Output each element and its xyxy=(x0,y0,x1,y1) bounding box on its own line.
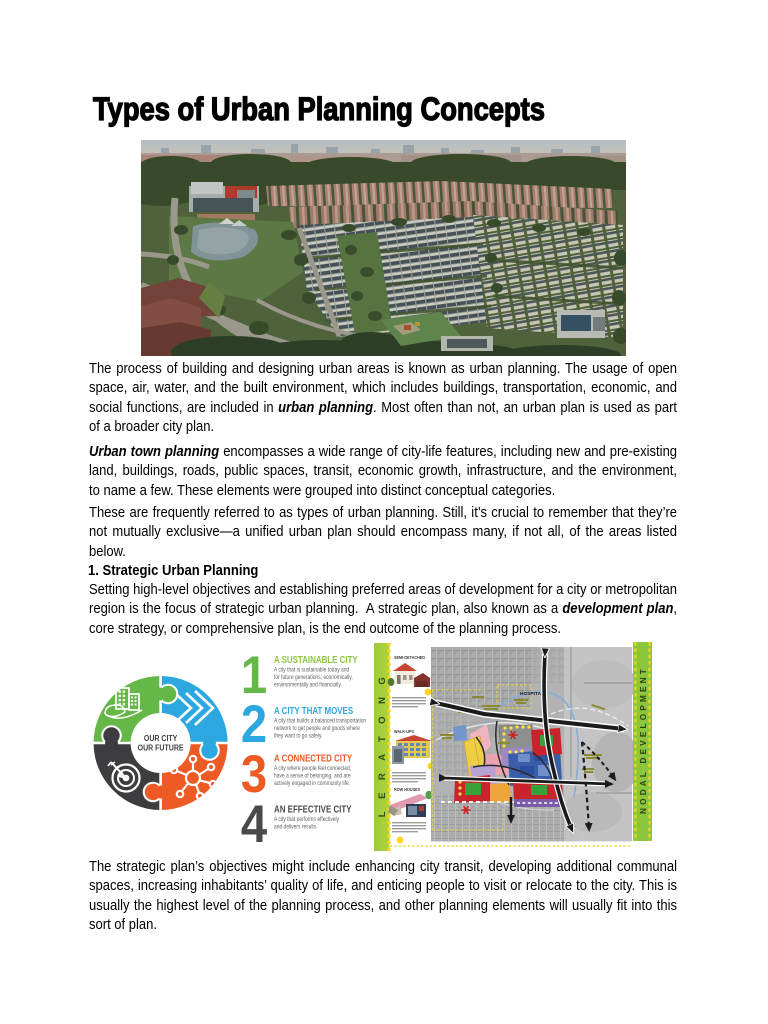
svg-text:OUR CITY: OUR CITY xyxy=(144,734,178,743)
svg-text:A CITY THAT MOVES: A CITY THAT MOVES xyxy=(274,705,353,716)
svg-text:A CONNECTED CITY: A CONNECTED CITY xyxy=(274,753,352,764)
svg-text:they want to go safely.: they want to go safely. xyxy=(274,733,323,740)
svg-text:have a sense of belonging, and: have a sense of belonging, and are xyxy=(274,773,351,780)
svg-text:WALK-UPS: WALK-UPS xyxy=(394,729,414,734)
svg-text:network to get people and good: network to get people and goods where xyxy=(274,726,360,733)
svg-text:AN EFFECTIVE CITY: AN EFFECTIVE CITY xyxy=(274,804,352,815)
svg-text:HOSPITAL: HOSPITAL xyxy=(520,691,544,697)
svg-text:OUR FUTURE: OUR FUTURE xyxy=(138,743,184,752)
svg-text:environmentally and financiall: environmentally and financially. xyxy=(274,682,342,689)
svg-text:LERATONG: LERATONG xyxy=(377,665,388,817)
svg-text:A SUSTAINABLE CITY: A SUSTAINABLE CITY xyxy=(274,654,358,665)
svg-text:A city that builds a balanced: A city that builds a balanced transporta… xyxy=(274,718,366,725)
svg-text:NODAL DEVELOPMENT: NODAL DEVELOPMENT xyxy=(639,666,648,814)
svg-text:A city where people feel conne: A city where people feel connected, xyxy=(274,766,352,773)
svg-text:actively engaged in community: actively engaged in community life. xyxy=(274,781,350,788)
svg-text:A city that is sustainable tod: A city that is sustainable today and xyxy=(274,667,349,674)
svg-text:SEMI-DETACHED: SEMI-DETACHED xyxy=(394,655,425,660)
svg-text:and delivers results.: and delivers results. xyxy=(274,824,318,831)
svg-text:A city that performs effective: A city that performs effectively xyxy=(274,817,339,824)
svg-text:4: 4 xyxy=(241,794,267,853)
svg-text:for future generations; econom: for future generations; economically, xyxy=(274,675,353,682)
svg-text:ROW HOUSES: ROW HOUSES xyxy=(394,787,420,792)
